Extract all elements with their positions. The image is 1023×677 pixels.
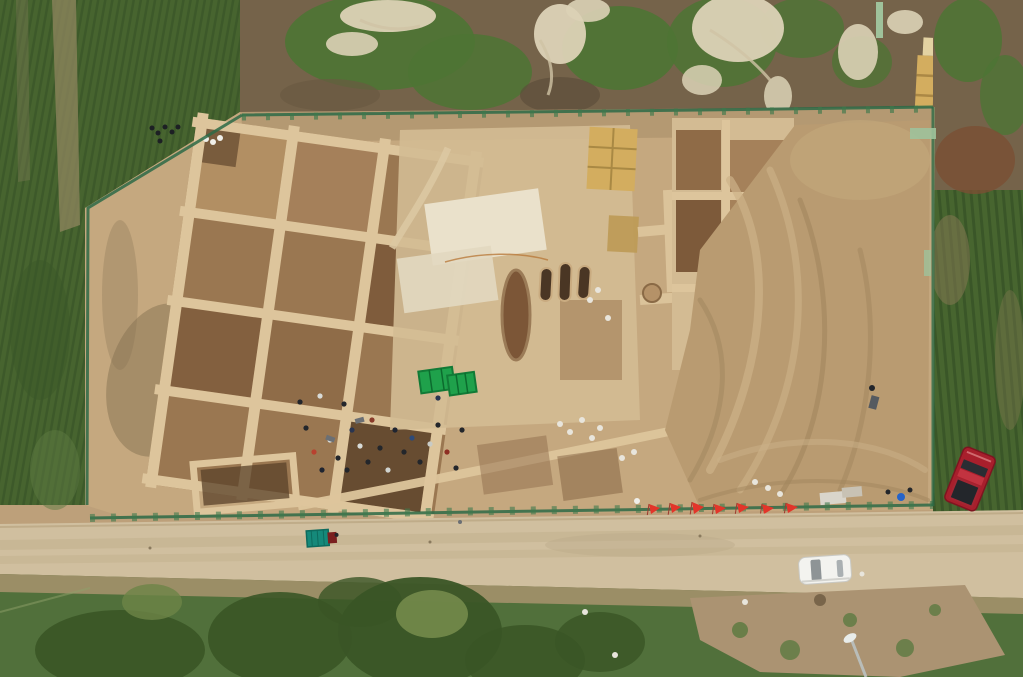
top-vegetation	[240, 0, 1023, 118]
white-car	[798, 554, 852, 585]
round-feature	[643, 284, 661, 302]
elongated-grave	[502, 270, 530, 360]
aerial-photo-archaeological-site	[0, 0, 1023, 677]
blue-tarp-bundle	[897, 493, 905, 501]
photo-canvas	[0, 0, 1023, 677]
right-vegetation	[930, 0, 1023, 512]
rust-colored-brush	[935, 126, 1015, 194]
worker-with-barrow	[869, 385, 875, 391]
